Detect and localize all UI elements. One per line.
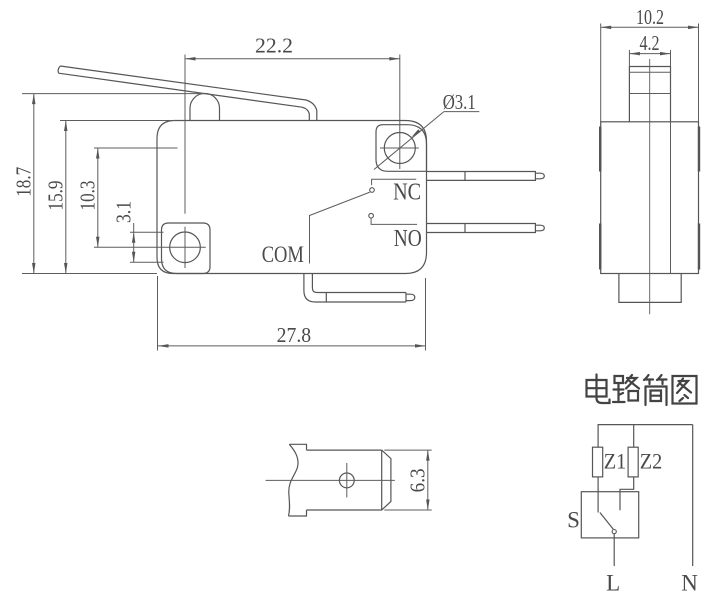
svg-text:3.1: 3.1: [111, 201, 135, 223]
svg-text:COM: COM: [262, 242, 304, 267]
svg-text:Z1: Z1: [604, 449, 627, 474]
svg-text:N: N: [681, 570, 698, 595]
svg-text:NC: NC: [393, 179, 421, 205]
svg-text:Z2: Z2: [640, 449, 663, 474]
svg-text:S: S: [567, 508, 580, 533]
svg-text:18.7: 18.7: [12, 167, 36, 197]
svg-text:6.3: 6.3: [406, 468, 430, 492]
svg-text:4.2: 4.2: [640, 31, 660, 55]
svg-text:10.3: 10.3: [76, 181, 100, 211]
svg-text:22.2: 22.2: [255, 34, 293, 58]
svg-text:27.8: 27.8: [277, 323, 312, 347]
svg-text:15.9: 15.9: [44, 181, 68, 211]
svg-text:L: L: [606, 570, 620, 595]
svg-text:NO: NO: [394, 226, 422, 252]
svg-text:Ø3.1: Ø3.1: [443, 90, 476, 114]
svg-text:10.2: 10.2: [636, 5, 664, 29]
